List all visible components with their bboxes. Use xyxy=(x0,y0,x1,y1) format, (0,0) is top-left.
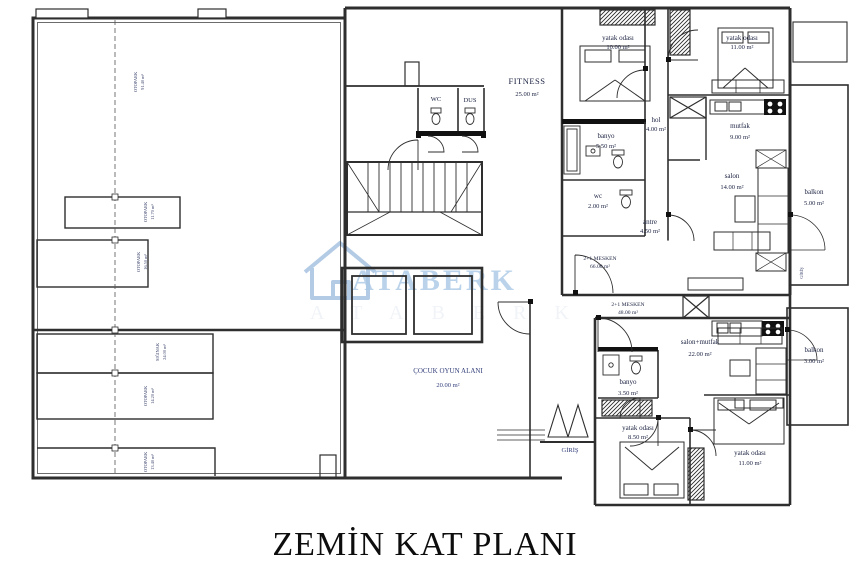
axis-marker xyxy=(112,194,118,200)
door-arc xyxy=(388,140,418,170)
garage-label-area: 24.00 m² xyxy=(162,343,167,359)
bedroom-area: 11.00 m² xyxy=(730,44,753,51)
light-shaft xyxy=(670,97,706,118)
plumbing-wall xyxy=(416,131,486,136)
unit-type-label: 2+1 MESKEN xyxy=(583,256,616,262)
garage-label-area: 16.50 m² xyxy=(143,253,148,269)
garage-label: OTOPARK xyxy=(133,71,138,92)
garage-label-area: 11.70 m² xyxy=(150,204,155,220)
unit-type-label: 2+1 MESKEN xyxy=(611,302,644,308)
side-entrance-label: GİRİŞ xyxy=(799,267,804,279)
closet-hatch xyxy=(600,10,655,25)
salon-label: salon xyxy=(725,172,740,180)
unit-area-label: 66.00 m² xyxy=(590,264,610,270)
garage-labels: OTOPARK 91.40 m² OTOPARK 11.70 m² OTOPAR… xyxy=(133,71,167,472)
salon-label: salon+mutfak xyxy=(681,338,720,346)
staircase xyxy=(347,162,482,235)
floor-plan-canvas: ATABERK ATABERK OTOPARK 91.40 m² OTOPARK… xyxy=(0,0,850,566)
garage-label-area: 14.20 m² xyxy=(150,387,155,403)
balcony-door-arc xyxy=(787,330,817,360)
floor-plan-page: ATABERK ATABERK OTOPARK 91.40 m² OTOPARK… xyxy=(0,0,850,566)
garage-label: SIĞINAK xyxy=(155,342,160,361)
salon-area: 22.00 m² xyxy=(688,351,711,358)
salon-furniture xyxy=(688,150,788,290)
play-area-area: 20.00 m² xyxy=(436,382,459,389)
axis-marker xyxy=(112,237,118,243)
plumbing-wall xyxy=(562,119,646,124)
banyo-label: banyo xyxy=(619,378,637,386)
bedroom-label: yatak odası xyxy=(726,34,758,42)
antre-area: 4.50 m² xyxy=(640,228,660,235)
balcony-door-arc xyxy=(790,215,825,250)
plan-title: ZEMİN KAT PLANI xyxy=(0,526,850,564)
hol-label: hol xyxy=(652,116,661,124)
upper-right-box xyxy=(793,22,847,62)
parking-bay xyxy=(65,197,180,228)
wall-notch xyxy=(36,9,88,18)
garage-label-area: 13.40 m² xyxy=(150,453,155,469)
balkon-label: balkon xyxy=(804,346,824,354)
door-arc xyxy=(462,136,478,152)
garage-label-area: 91.40 m² xyxy=(140,73,145,89)
mutfak-area: 9.00 m² xyxy=(730,134,750,141)
balcony xyxy=(787,308,848,425)
bedroom-area: 11.00 m² xyxy=(738,460,761,467)
axis-marker xyxy=(112,327,118,333)
banyo-area: 3.50 m² xyxy=(618,390,638,397)
wall-notch xyxy=(198,9,226,18)
garage-section xyxy=(33,9,345,478)
upper-apartment xyxy=(562,8,848,295)
mutfak-label: mutfak xyxy=(730,122,750,130)
closet-hatch xyxy=(670,10,690,55)
bathroom-fixtures xyxy=(603,355,642,375)
fitness-label: FITNESS xyxy=(508,76,545,86)
garage-label: OTOPARK xyxy=(136,251,141,272)
parking-bay xyxy=(37,334,213,373)
core-section xyxy=(342,8,790,478)
garage-label: OTOPARK xyxy=(143,385,148,406)
door-arc xyxy=(428,136,444,152)
door-arc xyxy=(598,318,632,352)
light-shaft xyxy=(683,296,709,318)
axis-marker xyxy=(112,445,118,451)
dus-label: DUS xyxy=(463,97,476,104)
bed xyxy=(620,442,684,498)
garage-outer-wall xyxy=(33,18,345,478)
axis-marker xyxy=(112,370,118,376)
salon-furniture xyxy=(718,328,786,408)
banyo-area: 5.50 m² xyxy=(596,143,616,150)
closet-hatch xyxy=(688,448,704,500)
kitchen-counter xyxy=(710,99,786,115)
parking-bay xyxy=(37,448,215,476)
wc-dus-partitions xyxy=(418,88,484,134)
bed xyxy=(580,46,650,101)
chimney xyxy=(405,62,419,86)
bedroom-label: yatak odası xyxy=(734,449,766,457)
wc-label: wc xyxy=(594,192,602,200)
parking-bay xyxy=(37,240,148,287)
fitness-area: 25.00 m² xyxy=(515,91,538,98)
bedroom-area: 10.00 m² xyxy=(606,44,629,51)
wc-area: 2.00 m² xyxy=(588,203,608,210)
balcony xyxy=(790,85,848,285)
bed xyxy=(714,398,784,444)
stove xyxy=(764,99,786,115)
garage-inner-wall-line xyxy=(38,23,341,474)
plumbing-wall xyxy=(598,347,658,352)
lower-apartment xyxy=(595,295,848,505)
watermark-brand-faint: ATABERK xyxy=(310,302,575,324)
garage-label: OTOPARK xyxy=(143,201,148,222)
duct-column xyxy=(320,455,336,478)
entrance-label: GİRİŞ xyxy=(562,447,579,454)
toilet-fixture xyxy=(431,108,475,125)
garage-label: OTOPARK xyxy=(143,451,148,472)
wc-label: WC xyxy=(431,96,441,103)
parking-bay xyxy=(37,373,213,419)
bedroom-area: 8.50 m² xyxy=(628,434,648,441)
entrance-double-door xyxy=(497,405,595,442)
bedroom-label: yatak odası xyxy=(622,424,654,432)
salon-area: 14.00 m² xyxy=(720,184,743,191)
banyo-label: banyo xyxy=(597,132,615,140)
unit-area-label: 48.00 m² xyxy=(618,310,638,316)
door-arc xyxy=(668,215,694,241)
hol-area: 4.00 m² xyxy=(646,126,666,133)
bedroom-label: yatak odası xyxy=(602,34,634,42)
balkon-area: 5.00 m² xyxy=(804,200,824,207)
play-area-label: ÇOCUK OYUN ALANI xyxy=(413,367,483,375)
balkon-label: balkon xyxy=(804,188,824,196)
antre-label: antre xyxy=(643,218,657,226)
balkon-area: 3.00 m² xyxy=(804,358,824,365)
